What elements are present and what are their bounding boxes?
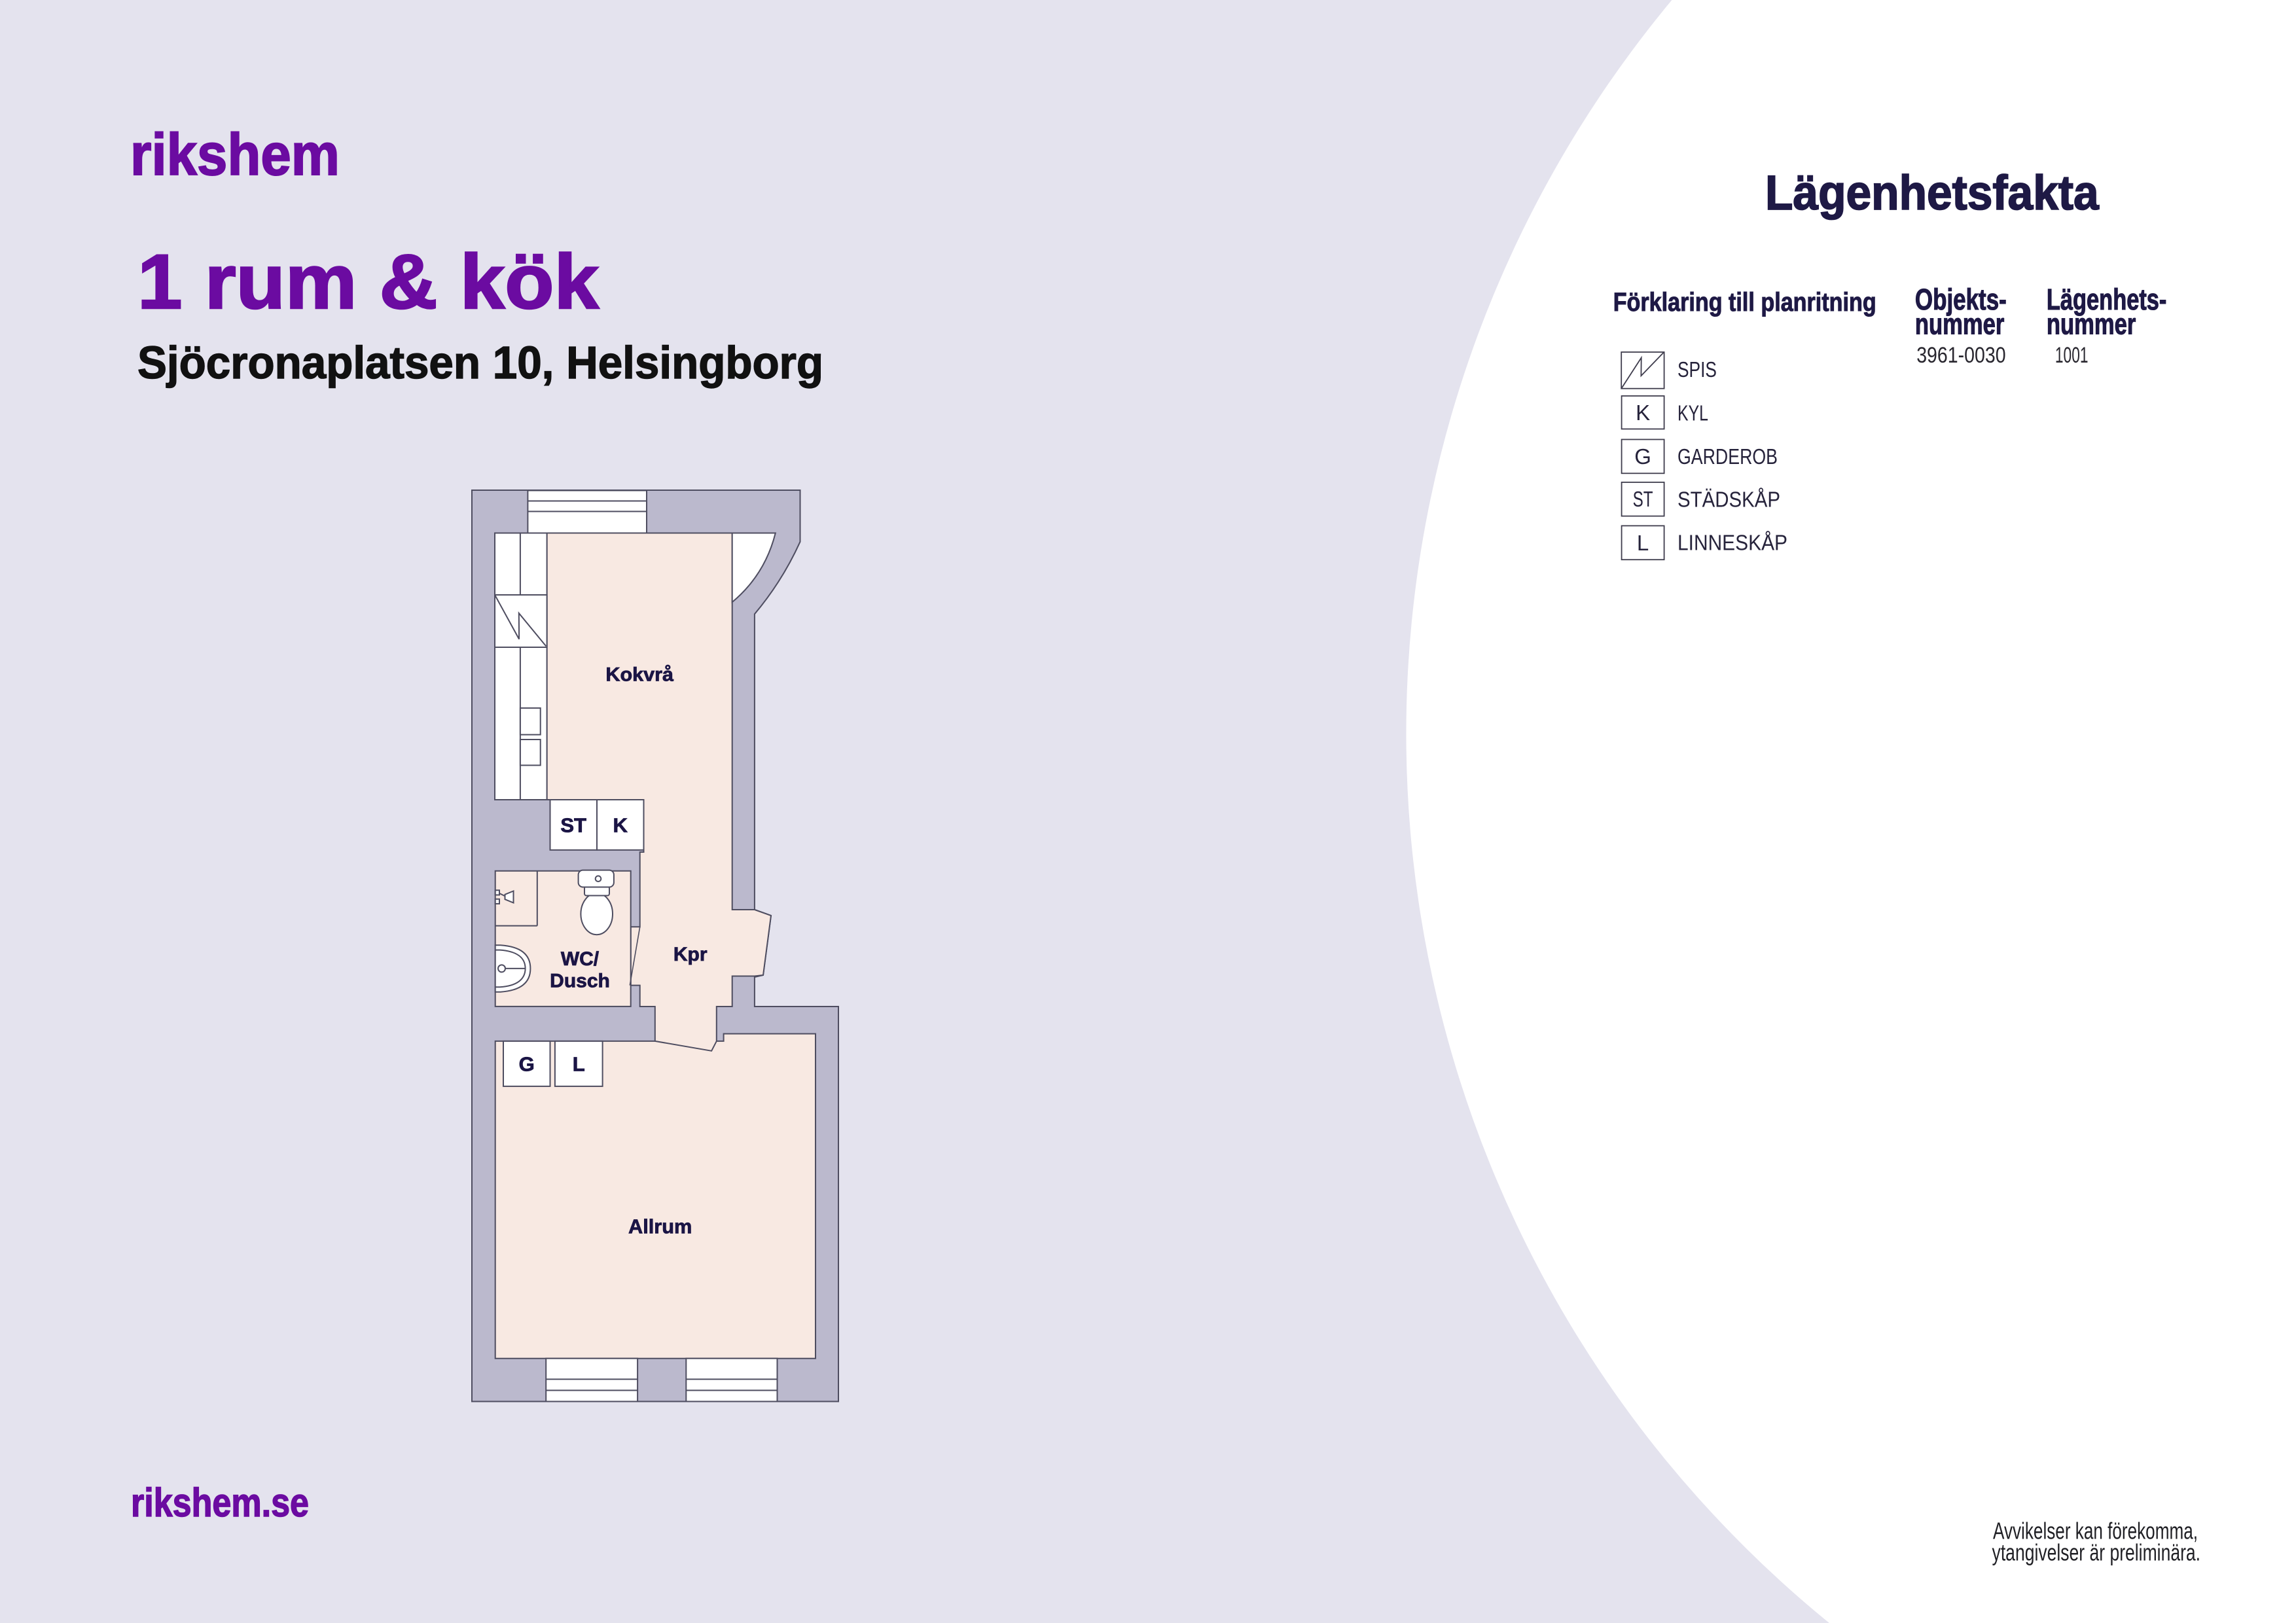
svg-text:L: L (1637, 531, 1649, 555)
svg-text:WC/: WC/ (561, 948, 600, 970)
svg-text:1 rum & kök: 1 rum & kök (137, 239, 599, 325)
svg-text:STÄDSKÅP: STÄDSKÅP (1677, 488, 1780, 512)
svg-text:ytangivelser är preliminära.: ytangivelser är preliminära. (1992, 1539, 2201, 1565)
svg-text:K: K (613, 814, 628, 837)
svg-text:GARDEROB: GARDEROB (1677, 444, 1778, 469)
svg-text:rikshem.se: rikshem.se (131, 1480, 309, 1525)
svg-text:nummer: nummer (1915, 308, 2004, 341)
svg-text:rikshem: rikshem (130, 122, 340, 188)
svg-text:KYL: KYL (1677, 401, 1708, 425)
svg-text:K: K (1636, 401, 1650, 425)
svg-text:nummer: nummer (2047, 308, 2136, 341)
svg-text:Dusch: Dusch (550, 970, 610, 991)
svg-text:1001: 1001 (2055, 343, 2089, 368)
svg-text:Sjöcronaplatsen 10, Helsingbor: Sjöcronaplatsen 10, Helsingborg (137, 337, 823, 388)
svg-text:LINNESKÅP: LINNESKÅP (1677, 531, 1787, 555)
svg-text:3961-0030: 3961-0030 (1916, 343, 2005, 368)
svg-text:Kokvrå: Kokvrå (605, 664, 673, 686)
svg-text:ST: ST (560, 814, 586, 837)
svg-text:Förklaring till planritning: Förklaring till planritning (1613, 288, 1876, 317)
svg-text:G: G (1634, 444, 1651, 469)
svg-text:L: L (573, 1053, 585, 1076)
svg-text:Kpr: Kpr (673, 944, 708, 965)
svg-text:G: G (519, 1053, 535, 1076)
svg-text:SPIS: SPIS (1677, 357, 1717, 382)
svg-text:ST: ST (1633, 487, 1653, 511)
svg-text:Lägenhetsfakta: Lägenhetsfakta (1765, 166, 2099, 220)
svg-text:Allrum: Allrum (628, 1215, 692, 1238)
